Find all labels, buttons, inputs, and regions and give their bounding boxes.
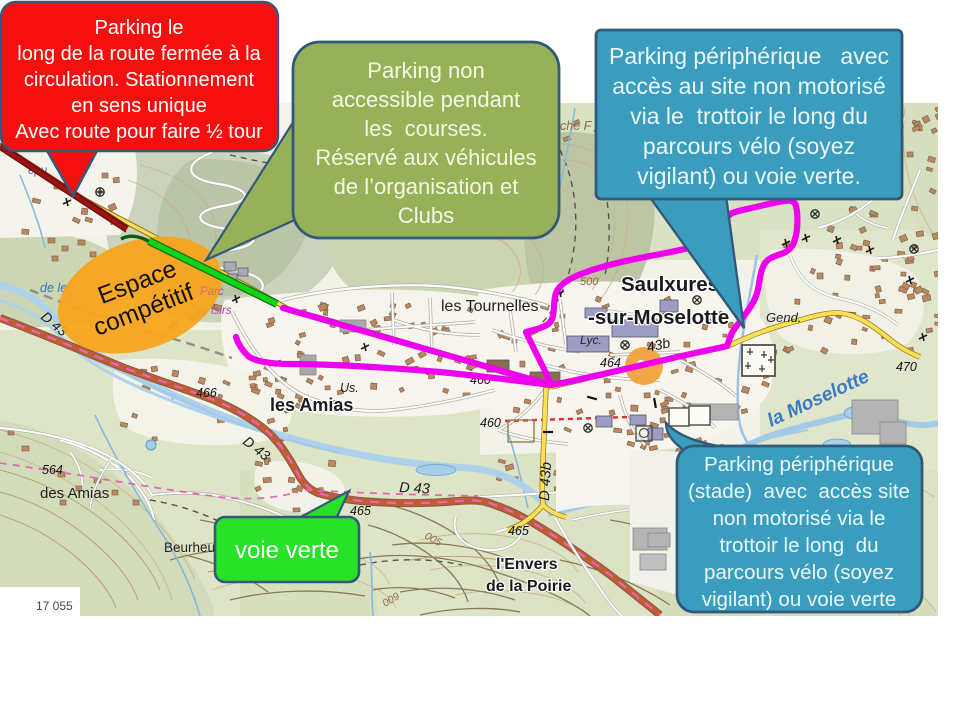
svg-text:trottoir le long du: trottoir le long du [719, 534, 878, 557]
svg-text:465: 465 [508, 524, 529, 538]
svg-text:564: 564 [42, 463, 63, 477]
svg-text:l'Envers: l'Envers [496, 556, 558, 573]
svg-text:Parc: Parc [200, 286, 224, 298]
svg-text:les Amias: les Amias [270, 395, 353, 415]
svg-text:(stade) avec accès site: (stade) avec accès site [688, 480, 910, 503]
svg-text:Parking périphérique: Parking périphérique [704, 453, 894, 476]
svg-text:466: 466 [196, 386, 217, 400]
svg-text:circulation. Stationnement: circulation. Stationnement [24, 69, 255, 91]
svg-text:parcours vélo (soyez: parcours vélo (soyez [643, 133, 855, 159]
svg-text:Parking le: Parking le [95, 17, 184, 39]
svg-text:Réservé aux véhicules: Réservé aux véhicules [315, 145, 536, 170]
svg-text:de l’organisation et: de l’organisation et [334, 174, 519, 199]
svg-text:en sens unique: en sens unique [71, 95, 207, 117]
svg-text:Parking périphérique avec: Parking périphérique avec [609, 43, 889, 69]
svg-text:de la Poirie: de la Poirie [486, 578, 571, 595]
svg-text:Us.: Us. [340, 381, 359, 395]
svg-text:-sur-Moselotte: -sur-Moselotte [588, 306, 729, 329]
svg-text:accessible pendant: accessible pendant [332, 87, 520, 112]
svg-text:17 055: 17 055 [36, 599, 73, 613]
svg-text:isirs: isirs [211, 305, 232, 317]
svg-text:Parking non: Parking non [367, 58, 484, 83]
svg-text:les Tournelles: les Tournelles [441, 298, 539, 315]
svg-text:des Amias: des Amias [40, 485, 109, 502]
svg-text:D 43b: D 43b [537, 462, 555, 501]
svg-text:les courses.: les courses. [364, 116, 488, 141]
svg-text:D 43: D 43 [399, 480, 430, 498]
svg-text:non motorisé via le: non motorisé via le [713, 507, 886, 530]
svg-text:470: 470 [896, 360, 917, 374]
svg-text:Saulxures: Saulxures [621, 273, 719, 296]
svg-text:vigilant) ou voie verte: vigilant) ou voie verte [702, 588, 897, 611]
svg-text:Clubs: Clubs [398, 203, 454, 228]
svg-text:accès au site non motorisé: accès au site non motorisé [612, 73, 886, 99]
svg-text:voie verte: voie verte [235, 537, 339, 564]
svg-text:che F: che F [560, 119, 593, 133]
svg-text:vigilant) ou voie verte.: vigilant) ou voie verte. [637, 163, 861, 189]
svg-text:460: 460 [480, 416, 501, 430]
svg-text:465: 465 [350, 504, 371, 518]
svg-text:parcours vélo (soyez: parcours vélo (soyez [704, 561, 894, 584]
svg-text:Beurheu: Beurheu [164, 540, 215, 555]
svg-text:Avec route pour faire ½ tour: Avec route pour faire ½ tour [15, 121, 263, 143]
svg-text:500: 500 [580, 276, 599, 288]
svg-text:via le trottoir le long du: via le trottoir le long du [630, 103, 868, 129]
svg-text:Gend.: Gend. [766, 310, 801, 325]
svg-text:long de la route fermée à la: long de la route fermée à la [17, 43, 261, 65]
svg-text:Lyc.: Lyc. [580, 333, 602, 347]
